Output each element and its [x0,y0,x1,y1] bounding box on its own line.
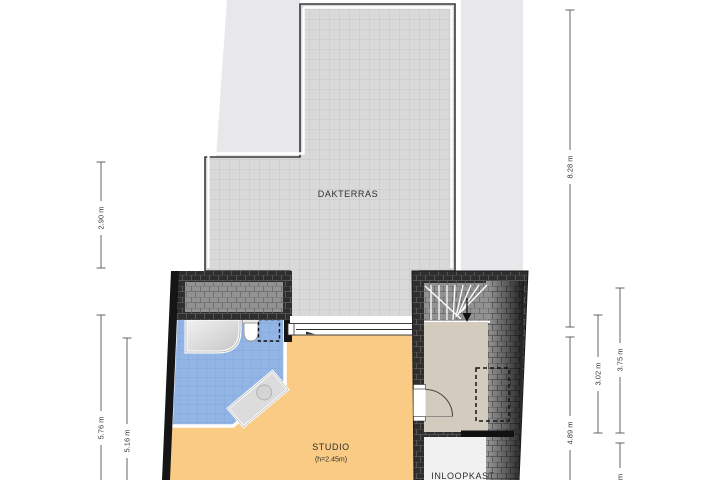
roof-hatch-gradient-lines [486,281,524,480]
dim-label-5-76: 5.76 m [97,417,106,440]
stairs [424,283,490,322]
dim-label-3-02: 3.02 m [594,363,603,386]
sliding-door [288,324,420,336]
door-opening [414,389,426,417]
dim-label-3-75: 3.75 m [616,349,625,372]
dim-label-partial-m: m [616,474,625,480]
inloopkast-label: INLOOPKAST [431,471,495,480]
terrace-threshold [290,316,420,324]
roof-hatch-left-inner [185,282,283,312]
dakterras-label: DAKTERRAS [318,189,378,199]
neighbor-roof-left [216,0,300,157]
dim-label-4-89: 4.89 m [566,422,575,445]
right-section [412,271,528,480]
studio-height-note: (h=2.45m) [315,457,347,464]
floorplan-svg: 2.90 m 5.76 m 5.16 m 8.28 m 4.89 m 3.02 … [0,0,720,480]
studio-label: STUDIO [312,442,350,452]
neighbor-roof-right [461,0,523,272]
floorplan-canvas: 2.90 m 5.76 m 5.16 m 8.28 m 4.89 m 3.02 … [0,0,720,480]
dim-label-2-90: 2.90 m [97,207,106,230]
shower [186,319,240,352]
hall-floor [424,322,488,432]
dim-label-8-28: 8.28 m [566,156,575,179]
dim-label-5-16: 5.16 m [123,430,132,453]
hall-closet-wall [461,431,514,438]
